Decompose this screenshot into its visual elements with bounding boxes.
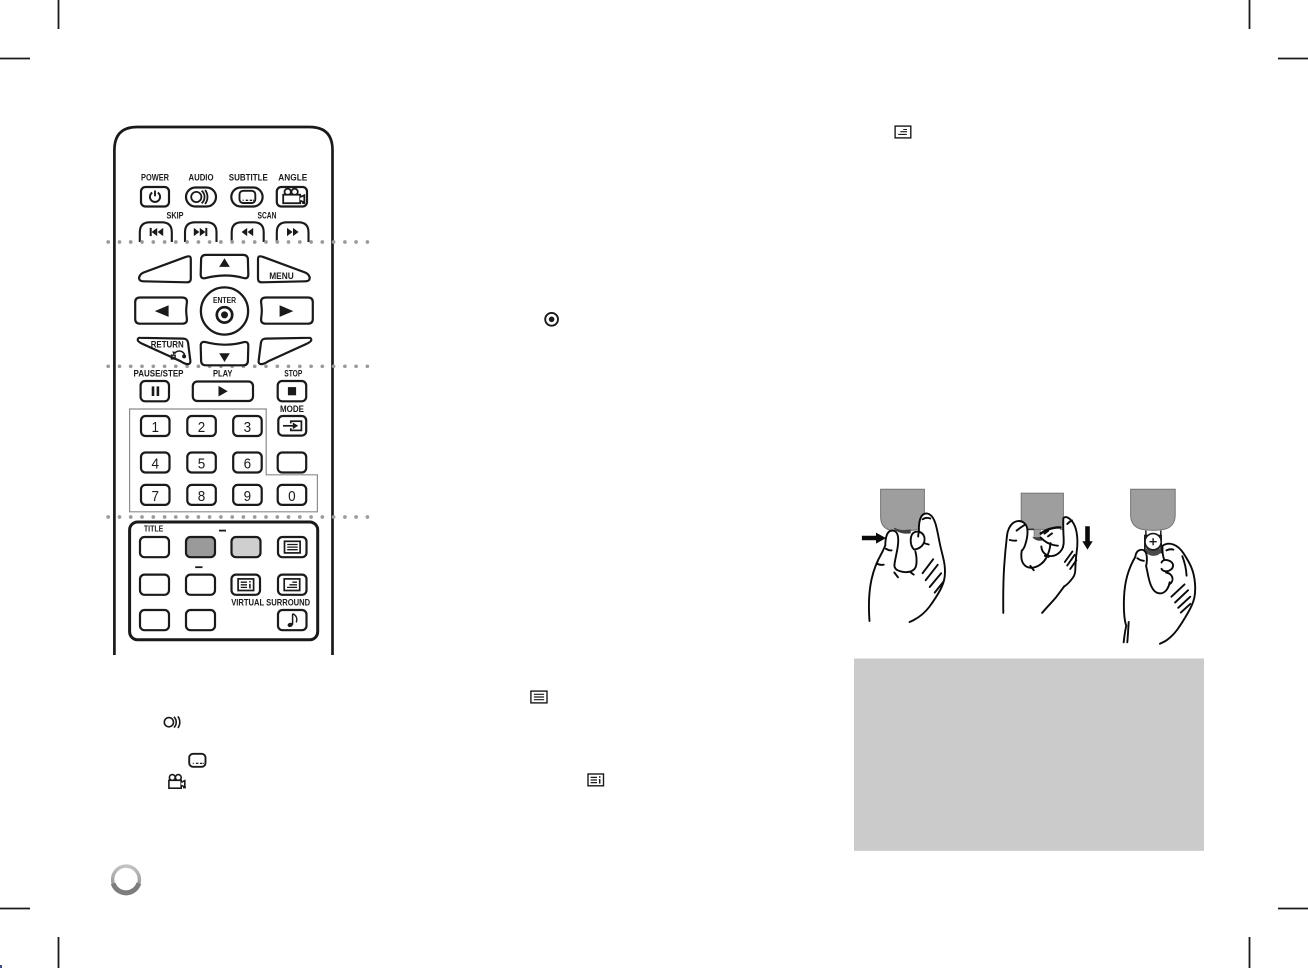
- svg-text:MENU: MENU: [269, 271, 294, 281]
- svg-text:0: 0: [288, 488, 296, 505]
- svg-text:PLAY: PLAY: [213, 368, 233, 378]
- svg-text:PAUSE/STEP: PAUSE/STEP: [134, 368, 184, 378]
- svg-text:2: 2: [198, 419, 206, 436]
- svg-text:SKIP: SKIP: [167, 210, 184, 220]
- svg-text:TITLE: TITLE: [144, 525, 164, 534]
- svg-text:ENTER: ENTER: [213, 296, 236, 305]
- svg-text:POWER: POWER: [141, 173, 169, 183]
- svg-text:3: 3: [244, 419, 252, 436]
- svg-text:6: 6: [244, 455, 252, 472]
- svg-text:1: 1: [151, 419, 159, 436]
- svg-text:MODE: MODE: [280, 404, 304, 414]
- svg-text:SUBTITLE: SUBTITLE: [229, 173, 268, 183]
- svg-text:VIRTUAL SURROUND: VIRTUAL SURROUND: [231, 597, 310, 607]
- svg-text:9: 9: [244, 488, 252, 505]
- svg-text:STOP: STOP: [284, 368, 302, 378]
- svg-text:8: 8: [198, 488, 206, 505]
- svg-text:AUDIO: AUDIO: [189, 173, 214, 183]
- svg-text:7: 7: [151, 488, 159, 505]
- svg-text:4: 4: [151, 455, 159, 472]
- svg-text:SCAN: SCAN: [258, 210, 277, 220]
- svg-text:5: 5: [198, 455, 206, 472]
- svg-text:RETURN: RETURN: [151, 340, 184, 350]
- svg-text:ANGLE: ANGLE: [278, 173, 307, 183]
